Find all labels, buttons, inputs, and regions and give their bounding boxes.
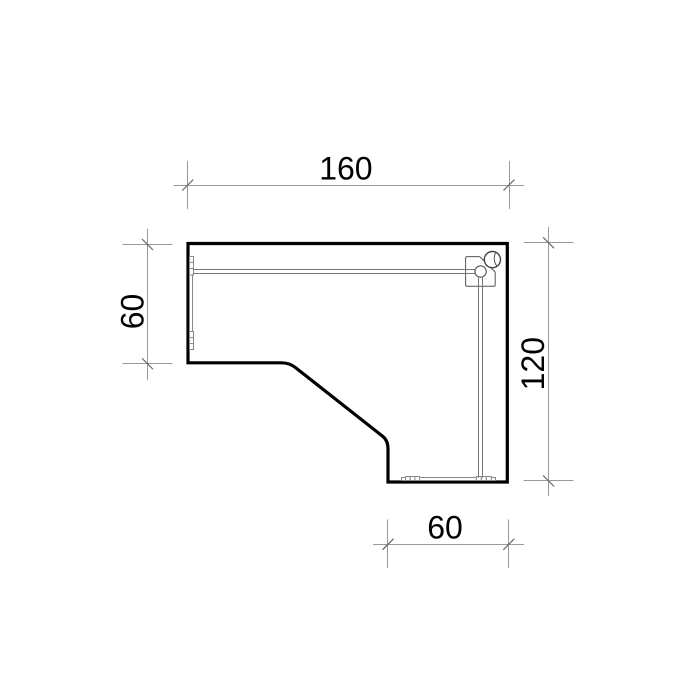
svg-text:120: 120 — [515, 337, 551, 390]
svg-text:60: 60 — [115, 294, 151, 330]
svg-text:160: 160 — [319, 151, 372, 187]
svg-text:60: 60 — [427, 509, 463, 545]
